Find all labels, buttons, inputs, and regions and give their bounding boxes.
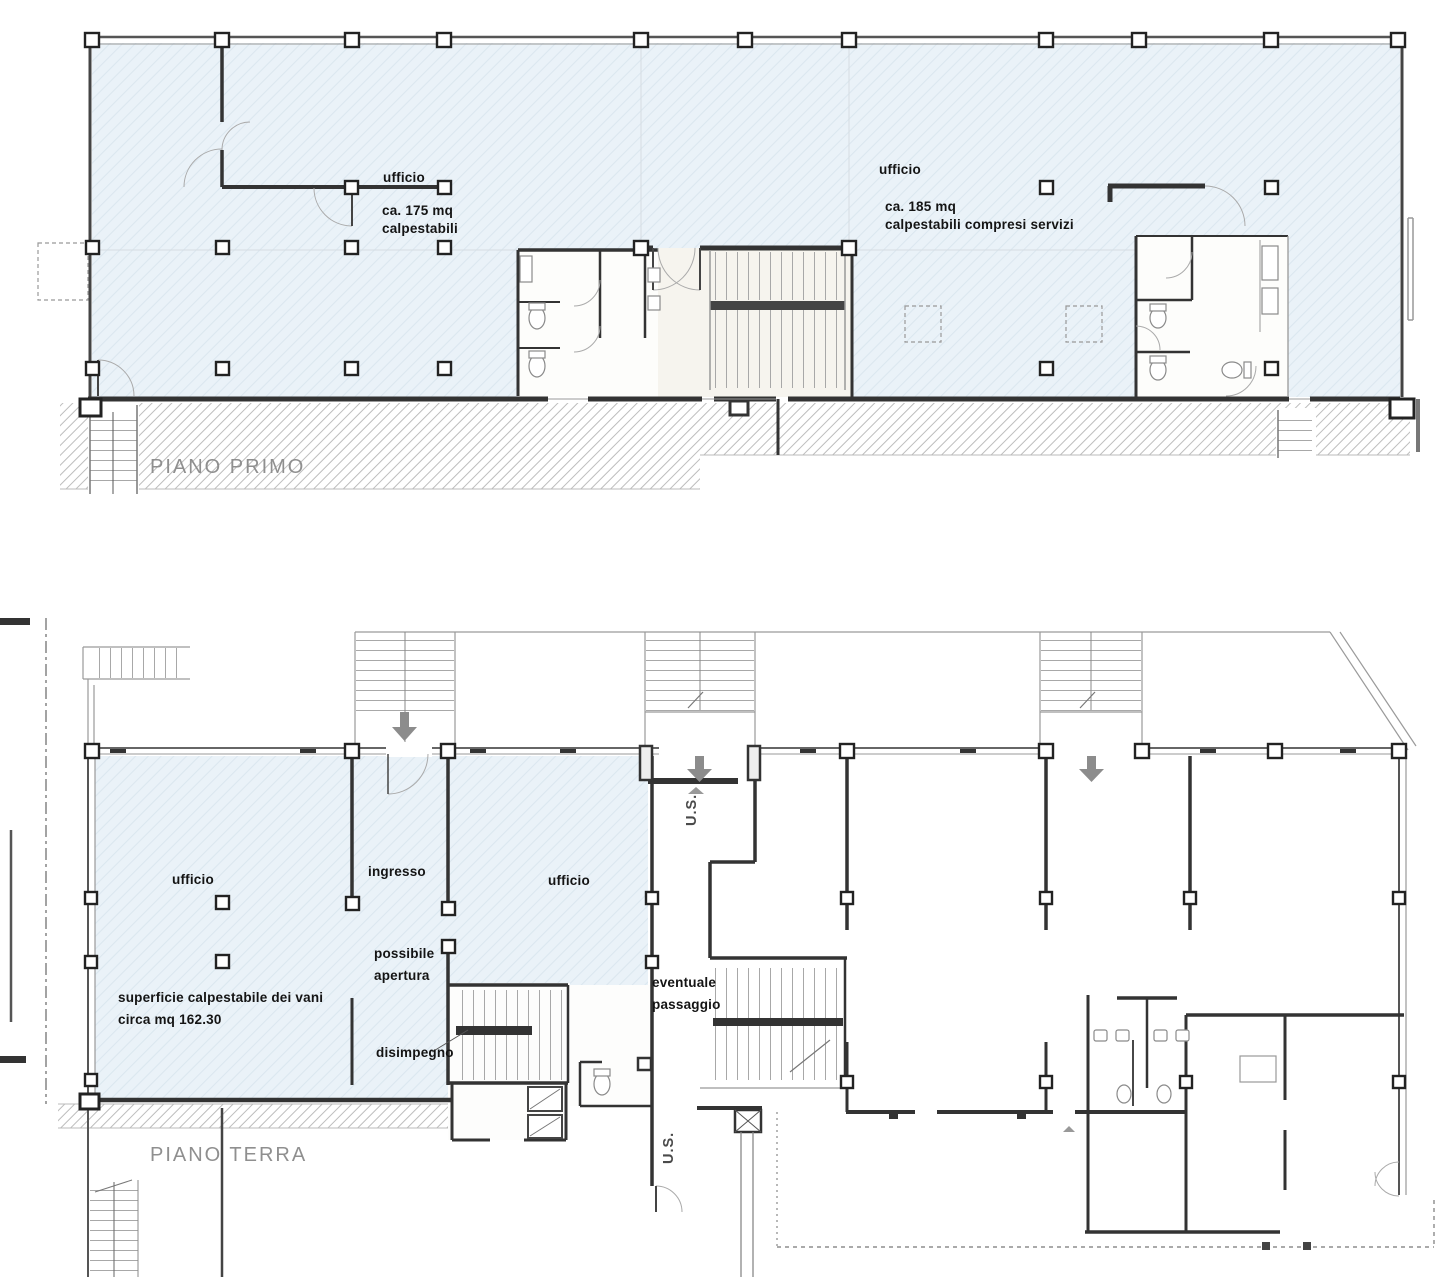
dashed-canopy-outline xyxy=(777,1200,1434,1250)
possible-opening-line1: possibile xyxy=(374,946,434,961)
wc-fixture xyxy=(594,1069,610,1095)
entrance-label: ingresso xyxy=(368,864,426,879)
terrace-stairs xyxy=(95,632,1141,742)
door-threshold-icon xyxy=(730,401,748,415)
balcony-railing xyxy=(1408,218,1413,320)
ground-office-center-label: ufficio xyxy=(548,873,590,888)
office-right-label: ufficio xyxy=(879,162,921,177)
floor-plan-page: ufficio ca. 175 mq calpestabili ufficio … xyxy=(0,0,1440,1277)
office-left-area-line2: calpestabili xyxy=(382,221,458,236)
first-floor-plan xyxy=(38,33,1418,495)
ground-restroom-fixtures xyxy=(1094,1030,1189,1103)
walkable-surface-line1: superficie calpestabile dei vani xyxy=(118,990,323,1005)
desk-outline xyxy=(1240,1056,1276,1082)
exit-threshold xyxy=(735,1110,761,1277)
ground-floor-title: PIANO TERRA xyxy=(150,1144,307,1167)
walkable-surface-line2: circa mq 162.30 xyxy=(118,1012,222,1027)
stairs-down-arrow-icon xyxy=(1079,756,1104,782)
ground-hatch-band xyxy=(58,1104,448,1128)
floor-plan-drawing xyxy=(0,0,1440,1277)
ground-internal-staircase xyxy=(456,990,562,1080)
exit-lower-label: U.S. xyxy=(661,1132,677,1164)
office-left-label: ufficio xyxy=(383,170,425,185)
dashed-annex-outline xyxy=(38,243,88,300)
exterior-stair-right xyxy=(1276,408,1316,458)
office-right-area-line2: calpestabili compresi servizi xyxy=(885,217,1074,232)
office-left-area-line1: ca. 175 mq xyxy=(382,203,453,218)
office-right-area-line1: ca. 185 mq xyxy=(885,199,956,214)
possible-passage-line2: passaggio xyxy=(652,997,721,1012)
hallway-label: disimpegno xyxy=(376,1045,454,1060)
possible-opening-line2: apertura xyxy=(374,968,430,983)
first-floor-title: PIANO PRIMO xyxy=(150,456,305,479)
first-floor-staircase xyxy=(710,250,845,390)
ground-floor-plan xyxy=(0,618,1434,1277)
stairs-down-arrow-icon xyxy=(392,712,417,741)
exit-upper-label: U.S. xyxy=(684,794,700,826)
exterior-stair-left xyxy=(80,399,139,495)
ground-office-left-label: ufficio xyxy=(172,872,214,887)
ground-central-staircase xyxy=(700,968,845,1088)
possible-passage-line1: eventuale xyxy=(652,975,716,990)
